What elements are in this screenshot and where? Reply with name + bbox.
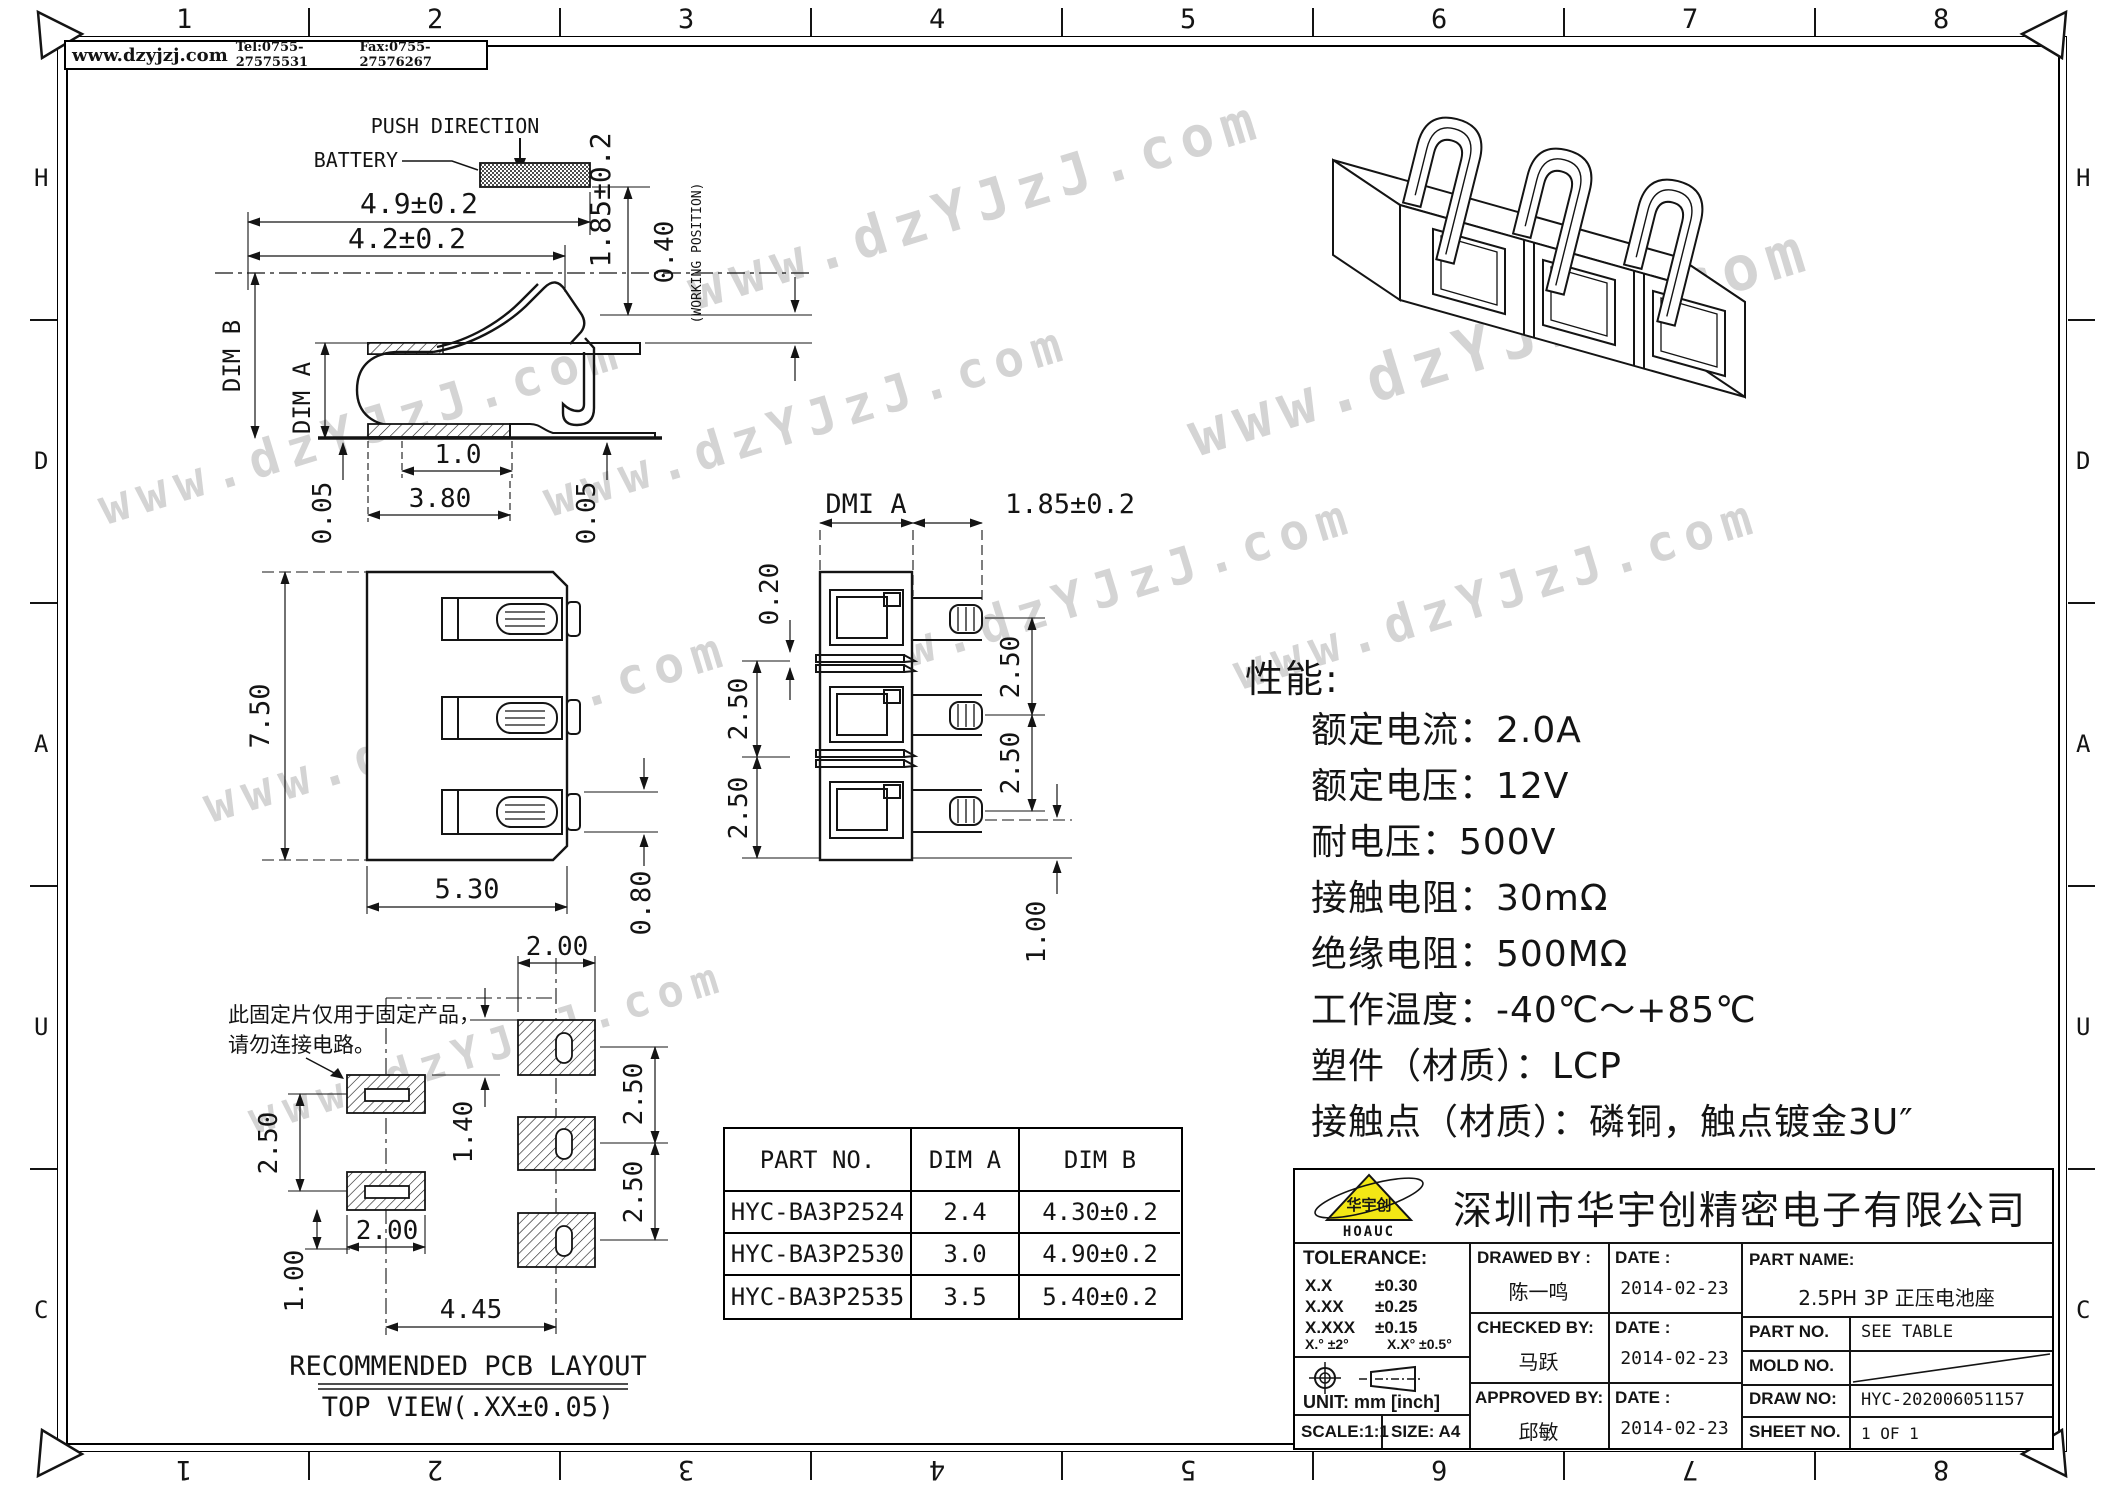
tol-row-label: X.XXX: [1305, 1318, 1355, 1338]
dim-250-r2-pcb: 2.50: [619, 1161, 649, 1224]
logo-text: HOAUC: [1343, 1224, 1395, 1240]
header-bar: www.dzyjzj.com Tel:0755-27575531 Fax:075…: [64, 40, 488, 70]
tol-row-label: X.XX: [1305, 1297, 1344, 1317]
table-cell: 4.90±0.2: [1020, 1234, 1180, 1276]
dim-750: 7.50: [245, 683, 276, 748]
table-row: HYC-BA3P2524 2.4 4.30±0.2: [725, 1192, 1181, 1234]
dim-005-right: 0.05: [572, 482, 602, 545]
spec-block: 性能: 额定电流：2.0A 额定电压：12V 耐电压：500V 接触电阻：30m…: [1245, 648, 1914, 1151]
table-cell: HYC-BA3P2535: [725, 1276, 912, 1318]
dim-250-l1: 2.50: [724, 678, 754, 741]
drawed-by-label: DRAWED BY :: [1477, 1248, 1591, 1268]
tol-row-value: ±0.25: [1375, 1297, 1417, 1317]
dim-140: 1.40: [449, 1101, 479, 1164]
dim-a-label: DIM A: [288, 361, 316, 434]
pcb-note-line1: 此固定片仅用于固定产品，: [228, 1003, 480, 1027]
date-label-2: DATE :: [1615, 1318, 1670, 1338]
dim-200-top: 2.00: [526, 932, 589, 962]
tol-row-value: ±0.30: [1375, 1276, 1417, 1296]
table-header-row: PART NO. DIM A DIM B: [725, 1129, 1181, 1192]
table-header-dima: DIM A: [912, 1129, 1020, 1192]
spec-item: 绝缘电阻：500MΩ: [1311, 927, 1914, 983]
dim-530: 5.30: [434, 874, 499, 905]
company-logo: 华宇创 HOAUC: [1307, 1172, 1437, 1242]
corner-mark-icon: [2022, 12, 2066, 58]
fax-text: Fax:0755-27576267: [360, 40, 480, 70]
dim-100: 1.00: [1022, 901, 1052, 964]
view-section: DMI A 1.85±0.2: [735, 480, 1180, 1000]
battery-label: BATTERY: [314, 148, 398, 172]
table-cell: HYC-BA3P2524: [725, 1192, 912, 1234]
working-position-label: (WORKING POSITION): [690, 183, 705, 324]
spec-item: 接触点（材质）：磷铜，触点镀金3U″: [1311, 1095, 1914, 1151]
part-table: PART NO. DIM A DIM B HYC-BA3P2524 2.4 4.…: [723, 1127, 1183, 1320]
dim-020: 0.20: [755, 563, 785, 626]
tol-angle-2: X.X° ±0.5°: [1387, 1336, 1452, 1352]
spec-item: 接触电阻：30mΩ: [1311, 871, 1914, 927]
part-name-label: PART NAME:: [1749, 1250, 1854, 1270]
size-label: SIZE: A4: [1391, 1422, 1460, 1442]
tol-angle-1: X.° ±2°: [1305, 1336, 1349, 1352]
table-header-partno: PART NO.: [725, 1129, 912, 1192]
battery-block: [480, 163, 590, 187]
projection-symbol-cone: [1357, 1366, 1423, 1392]
drawed-by-name: 陈一鸣: [1469, 1276, 1608, 1305]
dim-185: 1.85±0.2: [584, 133, 617, 268]
view-pcb-layout: 此固定片仅用于固定产品， 请勿连接电路。 2.00: [205, 945, 705, 1425]
part-name-value: 2.5PH 3P 正压电池座: [1741, 1282, 2052, 1311]
approved-by-label: APPROVED BY:: [1475, 1388, 1603, 1408]
dim-42: 4.2±0.2: [348, 222, 466, 255]
table-cell: HYC-BA3P2530: [725, 1234, 912, 1276]
table-row: HYC-BA3P2535 3.5 5.40±0.2: [725, 1276, 1181, 1318]
date-2: 2014-02-23: [1608, 1348, 1741, 1369]
draw-no-value: HYC-202006051157: [1861, 1390, 2025, 1410]
tol-row-value: ±0.15: [1375, 1318, 1417, 1338]
table-cell: 3.0: [912, 1234, 1020, 1276]
spec-item: 工作温度：-40℃～+85℃: [1311, 983, 1914, 1039]
table-cell: 2.4: [912, 1192, 1020, 1234]
dim-185b: 1.85±0.2: [1005, 489, 1135, 520]
checked-by-name: 马跃: [1469, 1346, 1608, 1375]
date-label-1: DATE :: [1615, 1248, 1670, 1268]
sheet-no-value: 1 OF 1: [1861, 1424, 1919, 1443]
push-direction-label: PUSH DIRECTION: [371, 114, 540, 138]
view-isometric: [1310, 145, 1880, 485]
spec-item: 耐电压：500V: [1311, 815, 1914, 871]
dim-200-bottom: 2.00: [356, 1216, 419, 1246]
dim-380: 3.80: [409, 484, 472, 514]
table-cell: 3.5: [912, 1276, 1020, 1318]
spec-item: 额定电压：12V: [1311, 759, 1914, 815]
company-name: 深圳市华宇创精密电子有限公司: [1435, 1180, 2045, 1236]
dim-49: 4.9±0.2: [360, 187, 478, 220]
scale-label: SCALE:1:1: [1301, 1422, 1389, 1442]
dim-040: 0.40: [650, 221, 680, 284]
dim-005-left: 0.05: [308, 482, 338, 545]
table-row: HYC-BA3P2530 3.0 4.90±0.2: [725, 1234, 1181, 1276]
dim-b-label: DIM B: [218, 320, 246, 392]
tolerance-label: TOLERANCE:: [1303, 1248, 1427, 1270]
website-text: www.dzyjzj.com: [72, 45, 228, 66]
date-1: 2014-02-23: [1608, 1278, 1741, 1299]
dim-445: 4.45: [440, 1295, 503, 1325]
corner-mark-icon: [38, 1430, 82, 1476]
dim-250-left: 2.50: [254, 1112, 284, 1175]
dim-250-l2: 2.50: [724, 777, 754, 840]
table-cell: 5.40±0.2: [1020, 1276, 1180, 1318]
approved-by-name: 邱敏: [1469, 1416, 1608, 1445]
table-cell: 4.30±0.2: [1020, 1192, 1180, 1234]
pcb-layout-title: RECOMMENDED PCB LAYOUT: [289, 1351, 647, 1382]
dim-dmi-a: DMI A: [825, 489, 906, 520]
dim-250-r1-pcb: 2.50: [619, 1063, 649, 1126]
pcb-note-line2: 请勿连接电路。: [228, 1033, 375, 1057]
sheet-no-label: SHEET NO.: [1749, 1422, 1841, 1442]
title-block: 华宇创 HOAUC 深圳市华宇创精密电子有限公司 TOLERANCE: X.X …: [1293, 1168, 2054, 1450]
dim-250-r1: 2.50: [996, 636, 1026, 699]
spec-item: 塑件（材质）：LCP: [1311, 1039, 1914, 1095]
logo-cn-text: 华宇创: [1346, 1196, 1391, 1214]
view-front: 7.50 5.30 0.80: [230, 555, 700, 1005]
dim-080: 0.80: [626, 870, 657, 935]
mold-no-label: MOLD NO.: [1749, 1356, 1834, 1376]
checked-by-label: CHECKED BY:: [1477, 1318, 1594, 1338]
spec-title: 性能:: [1245, 648, 1914, 703]
tol-row-label: X.X: [1305, 1276, 1332, 1296]
date-label-3: DATE :: [1615, 1388, 1670, 1408]
dim-100-pcb: 1.00: [280, 1250, 310, 1313]
part-no-label: PART NO.: [1749, 1322, 1829, 1342]
table-header-dimb: DIM B: [1020, 1129, 1180, 1192]
projection-symbol-target: [1307, 1360, 1343, 1396]
spec-item: 额定电流：2.0A: [1311, 703, 1914, 759]
mold-no-diagonal: [1851, 1352, 2052, 1384]
unit-label: UNIT: mm [inch]: [1303, 1392, 1440, 1413]
draw-no-label: DRAW NO:: [1749, 1389, 1837, 1409]
part-no-value: SEE TABLE: [1861, 1322, 1953, 1342]
tel-text: Tel:0755-27575531: [236, 40, 353, 70]
dim-10: 1.0: [435, 440, 482, 470]
date-3: 2014-02-23: [1608, 1418, 1741, 1439]
dim-250-r2: 2.50: [996, 732, 1026, 795]
drawing-sheet: 1 2 3 4 5 6 7 8 1 2 3 4 5 6 7 8 H D A U …: [0, 0, 2105, 1488]
pcb-layout-subtitle: TOP VIEW(.XX±0.05): [322, 1392, 615, 1423]
